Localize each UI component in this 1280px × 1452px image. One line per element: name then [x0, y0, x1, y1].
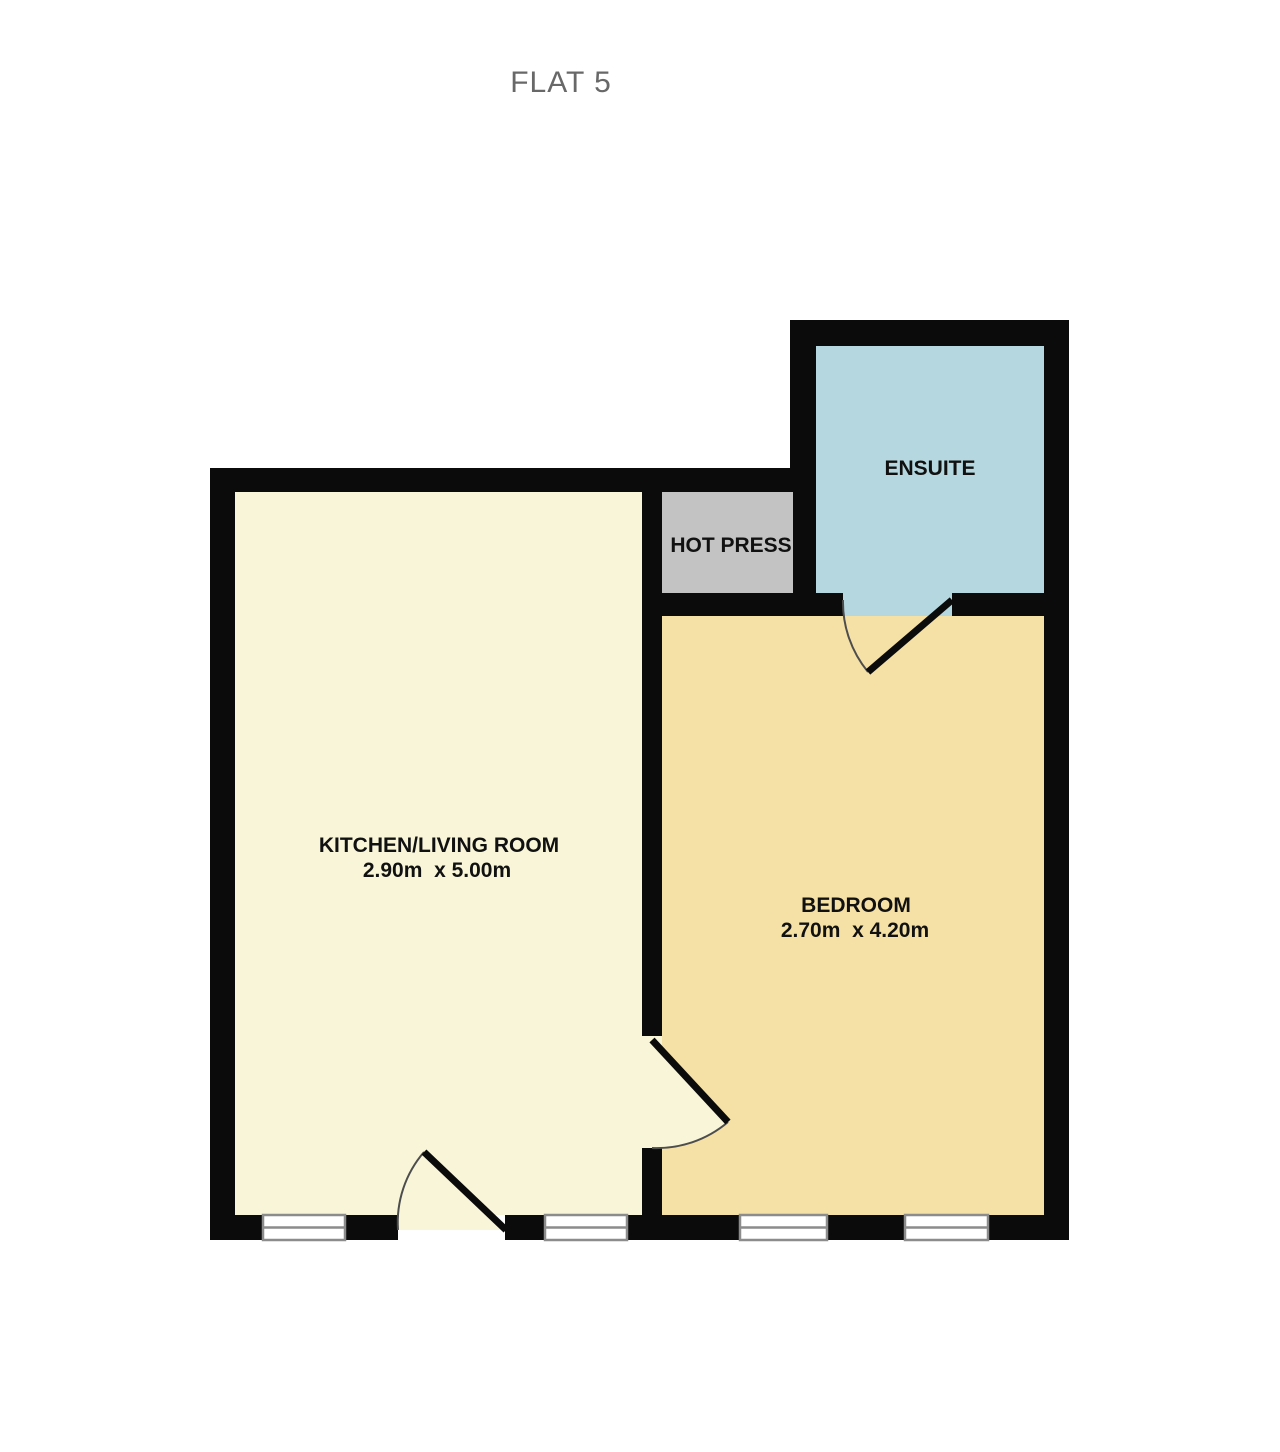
- bedroom-label: BEDROOM: [801, 894, 911, 917]
- ensuite-label: ENSUITE: [884, 457, 975, 480]
- bedroom-dimensions: 2.70m x 4.20m: [781, 919, 929, 942]
- kitchen-dimensions: 2.90m x 5.00m: [363, 859, 511, 882]
- window-kitchen-right: [545, 1215, 627, 1240]
- kitchen-label: KITCHEN/LIVING ROOM: [319, 834, 559, 857]
- window-bedroom-left: [740, 1215, 827, 1240]
- floor-plan-page: FLAT 5: [0, 0, 1280, 1452]
- window-bedroom-right: [905, 1215, 988, 1240]
- floor-plan: ENSUITE HOT PRESS KITCHEN/LIVING ROOM 2.…: [0, 0, 1280, 1452]
- window-kitchen-left: [263, 1215, 345, 1240]
- hot-press-label: HOT PRESS: [670, 534, 791, 557]
